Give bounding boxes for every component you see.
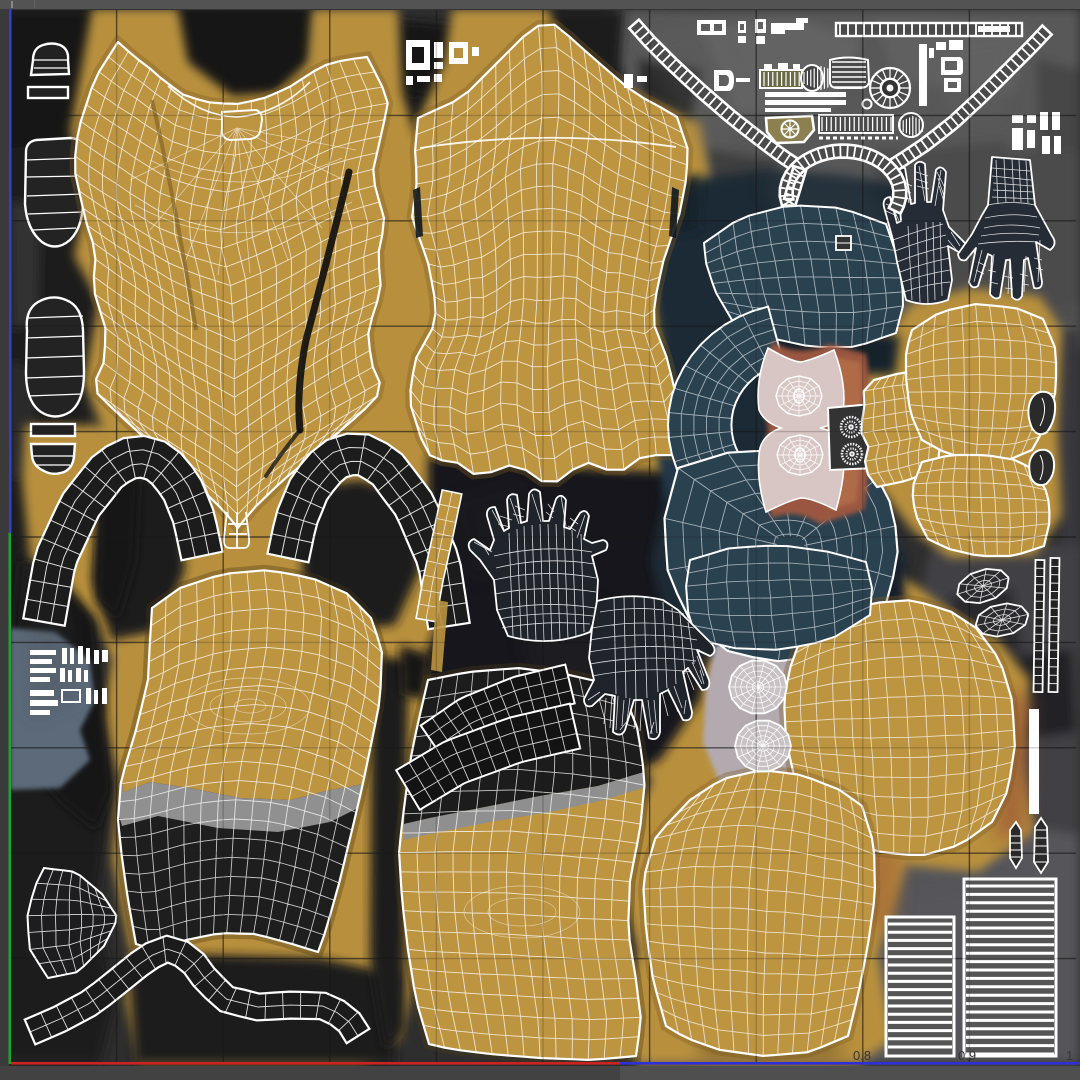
svg-text:0.9: 0.9	[958, 1048, 976, 1063]
svg-text:0.8: 0.8	[853, 1048, 871, 1063]
svg-text:1: 1	[1066, 1048, 1073, 1063]
